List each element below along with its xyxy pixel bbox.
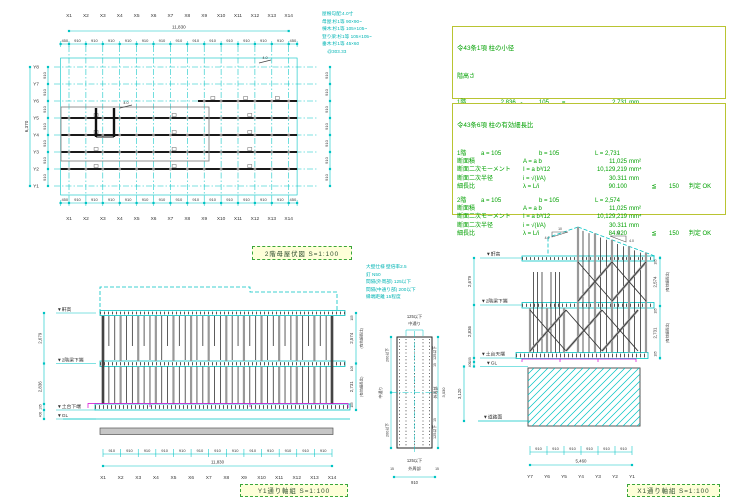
dim-text: 910 bbox=[108, 197, 115, 202]
purlin-joint bbox=[169, 168, 172, 171]
dim-text: 910 bbox=[226, 197, 233, 202]
calc-cell: A = a b bbox=[523, 158, 581, 166]
dim-text: 910 bbox=[277, 38, 284, 43]
dim-text: 125以下 bbox=[407, 458, 422, 464]
purlin-joint bbox=[101, 168, 104, 171]
dim-node bbox=[220, 43, 222, 45]
plan-x-label-top: X3 bbox=[100, 13, 106, 19]
purlin-joint bbox=[152, 134, 155, 137]
dim-node bbox=[43, 312, 45, 314]
purlin-joint bbox=[68, 151, 71, 154]
calc-cell: I = a b³/12 bbox=[523, 166, 581, 174]
dim-text: 910 bbox=[108, 38, 115, 43]
calc-cell: 11,025 bbox=[581, 158, 627, 166]
calc-cell: 断面二次半径 bbox=[457, 222, 523, 230]
slope-mark: 4.0 bbox=[262, 56, 267, 60]
calc-cell: 断面二次モーメント bbox=[457, 166, 523, 174]
dim-text: 910 bbox=[91, 197, 98, 202]
calc-row: 断面二次モーメントI = a b³/1210,129,219mm⁴ bbox=[457, 166, 725, 174]
calc-cell: λ = L/i bbox=[523, 230, 581, 238]
dim-node bbox=[102, 43, 104, 45]
purlin-joint bbox=[68, 134, 71, 137]
plan-x-label-top: X13 bbox=[268, 13, 277, 19]
dim-text: 2,574 bbox=[653, 276, 658, 288]
slope-arrow bbox=[259, 60, 271, 63]
calc-cell: L = 2,731 bbox=[595, 150, 725, 158]
dim-text: 15 bbox=[433, 363, 437, 367]
dim-text: 910 bbox=[569, 446, 576, 451]
calc-cell bbox=[679, 205, 721, 213]
dim-text: 910 bbox=[144, 448, 151, 453]
purlin-joint bbox=[254, 151, 257, 154]
calc-box-title: 令43条1項 柱の小径 bbox=[457, 45, 725, 53]
dim-node bbox=[473, 357, 475, 359]
plan-x-label-top: X5 bbox=[134, 13, 140, 19]
dim-text: 2,836 bbox=[38, 381, 43, 393]
elevation-total-dim: 11,830 bbox=[211, 460, 225, 465]
dim-node bbox=[329, 134, 331, 136]
hanger-symbol bbox=[172, 131, 176, 134]
calc-cell bbox=[661, 166, 679, 174]
dim-node bbox=[136, 43, 138, 45]
calc-cell bbox=[647, 158, 661, 166]
dim-text: 910 bbox=[260, 197, 267, 202]
dim-node bbox=[271, 43, 273, 45]
calc-cell bbox=[679, 166, 721, 174]
hatch-line bbox=[574, 368, 632, 426]
slope-mark: 4.0 bbox=[123, 101, 128, 105]
purlin-joint bbox=[169, 151, 172, 154]
level-label: ▼土台天端 bbox=[481, 351, 505, 358]
ground-strip bbox=[100, 428, 333, 435]
plan-x-label-bottom: X9 bbox=[201, 216, 207, 222]
panel-note-line: 間隔(外周部) 125以下 bbox=[366, 278, 416, 286]
axis-label: X11 bbox=[275, 475, 284, 481]
axis-label: Y1 bbox=[629, 474, 635, 480]
purlin-joint bbox=[152, 168, 155, 171]
dim-node bbox=[393, 476, 395, 478]
calc-cell bbox=[647, 175, 661, 183]
dim-text: 910 bbox=[159, 38, 166, 43]
dim-node bbox=[29, 66, 31, 68]
dim-text: 910 bbox=[42, 156, 47, 163]
calc-cell bbox=[647, 213, 661, 221]
dim-node bbox=[43, 418, 45, 420]
dim-text: 910 bbox=[324, 156, 329, 163]
plan-left-total-dim: 6,370 bbox=[24, 120, 29, 132]
purlin-joint bbox=[220, 117, 223, 120]
dim-text: 910 bbox=[125, 197, 132, 202]
plan-x-label-bottom: X3 bbox=[100, 216, 106, 222]
purlin-joint bbox=[152, 151, 155, 154]
purlin-joint bbox=[85, 134, 88, 137]
dim-node bbox=[463, 420, 465, 422]
axis-label: X10 bbox=[257, 475, 266, 481]
purlin-joint bbox=[186, 168, 189, 171]
calc-cell: 30.311 bbox=[581, 175, 627, 183]
calc-cell: ≦ bbox=[647, 183, 661, 191]
calc-cell: L = 2,574 bbox=[595, 197, 725, 205]
purlin-joint bbox=[287, 117, 290, 120]
purlin-joint bbox=[203, 117, 206, 120]
purlin-joint bbox=[118, 151, 121, 154]
plan-y-label: Y8 bbox=[33, 65, 39, 71]
calc-cell: a = 105 bbox=[481, 197, 539, 205]
purlin-joint bbox=[68, 168, 71, 171]
dim-text: 15 bbox=[433, 418, 437, 422]
purlin-joint bbox=[203, 151, 206, 154]
purlin-joint bbox=[270, 100, 273, 103]
dim-text: 910 bbox=[176, 197, 183, 202]
calc-cell bbox=[679, 175, 721, 183]
dim-text: 910 bbox=[267, 448, 274, 453]
dim-text: 105 bbox=[654, 351, 658, 357]
panel-note-line: 縁端距離 15程度 bbox=[366, 293, 416, 301]
dim-node bbox=[47, 100, 49, 102]
slope-arrow bbox=[120, 105, 132, 108]
dim-text: 910 bbox=[126, 448, 133, 453]
dim-text: 910 bbox=[324, 88, 329, 95]
calc-cell: 断面積 bbox=[457, 158, 523, 166]
plan-y-label: Y2 bbox=[33, 167, 39, 173]
dim-text: 450 bbox=[290, 38, 297, 43]
purlin-joint bbox=[254, 100, 257, 103]
hatch-line bbox=[560, 368, 618, 426]
dim-note: (有効細長比) bbox=[359, 377, 364, 397]
dim-text: 910 bbox=[243, 38, 250, 43]
dim-note: (有効細長比) bbox=[665, 323, 670, 343]
calc-cell: 2階 bbox=[457, 197, 481, 205]
purlin-joint bbox=[287, 100, 290, 103]
dim-text: 910 bbox=[324, 122, 329, 129]
plan-x-label-bottom: X13 bbox=[268, 216, 277, 222]
hanger-symbol bbox=[172, 114, 176, 117]
dim-text: 910 bbox=[249, 448, 256, 453]
axis-label: Y7 bbox=[527, 474, 533, 480]
dim-text: 2,731 bbox=[653, 327, 658, 339]
plan-x-label-bottom: X11 bbox=[234, 216, 243, 222]
dim-text: 910 bbox=[552, 446, 559, 451]
purlin-joint bbox=[186, 134, 189, 137]
hanger-symbol bbox=[248, 148, 252, 151]
axis-label: Y4 bbox=[578, 474, 584, 480]
dim-text: 910 bbox=[243, 197, 250, 202]
dim-text: 910 bbox=[586, 446, 593, 451]
dim-text: 125以下 bbox=[432, 346, 437, 360]
dim-note: (有効細長比) bbox=[359, 328, 364, 348]
purlin-joint bbox=[186, 151, 189, 154]
hanger-symbol bbox=[211, 97, 215, 100]
calc-rows: 1階a = 105b = 105L = 2,731断面積A = a b11,02… bbox=[457, 150, 725, 238]
purlin-joint bbox=[237, 134, 240, 137]
dim-text: 2,679 bbox=[38, 332, 43, 344]
dim-text: 910 bbox=[302, 448, 309, 453]
panel-note-line: 釘 N50 bbox=[366, 271, 416, 279]
axis-label: X5 bbox=[171, 475, 177, 481]
plan-y-label: Y7 bbox=[33, 82, 39, 88]
hatch-line bbox=[528, 368, 534, 374]
hatch-line bbox=[539, 368, 597, 426]
calc-cell bbox=[647, 205, 661, 213]
purlin-joint bbox=[169, 117, 172, 120]
purlin-joint bbox=[203, 134, 206, 137]
calc-cell: 10,129,219 bbox=[581, 166, 627, 174]
purlin-joint bbox=[220, 100, 223, 103]
dim-text: 15 bbox=[435, 467, 439, 471]
plan-x-label-top: X6 bbox=[151, 13, 157, 19]
dim-text: 450 bbox=[61, 38, 68, 43]
axis-label: Y3 bbox=[595, 474, 601, 480]
plan-x-label-bottom: X1 bbox=[66, 216, 72, 222]
level-label: ▼2階梁下端 bbox=[481, 298, 508, 305]
purlin-joint bbox=[118, 134, 121, 137]
dim-node bbox=[47, 151, 49, 153]
dim-node bbox=[119, 202, 121, 204]
dim-node bbox=[47, 66, 49, 68]
panel-label: 外周部 bbox=[432, 387, 438, 399]
dim-text: 910 bbox=[324, 139, 329, 146]
purlin-joint bbox=[135, 117, 138, 120]
hatch-line bbox=[528, 368, 555, 395]
calc-row: 断面二次半径i = √(I/A)30.311mm bbox=[457, 175, 725, 183]
purlin-joint bbox=[287, 134, 290, 137]
dim-node bbox=[220, 202, 222, 204]
dim-node bbox=[43, 403, 45, 405]
plan-x-label-top: X4 bbox=[117, 13, 123, 19]
calc-cell: 断面二次半径 bbox=[457, 175, 523, 183]
hatch-line bbox=[567, 368, 625, 426]
dim-text: 910 bbox=[214, 448, 221, 453]
dim-node bbox=[659, 257, 661, 259]
dim-node bbox=[85, 202, 87, 204]
panel-spec-notes: 大壁仕様 壁倍率2.5釘 N50間隔(外周部) 125以下間隔(中通り部) 20… bbox=[366, 263, 416, 301]
dim-node bbox=[437, 447, 439, 449]
calc-cell: 細長比 bbox=[457, 230, 523, 238]
calc-cell bbox=[661, 175, 679, 183]
dim-text: 910 bbox=[179, 448, 186, 453]
panel-label: 中通り bbox=[408, 320, 421, 327]
hatch-line bbox=[546, 368, 604, 426]
plan-x-label-top: X12 bbox=[251, 13, 260, 19]
dim-node bbox=[473, 361, 475, 363]
purlin-joint bbox=[220, 134, 223, 137]
plan-x-label-top: X7 bbox=[167, 13, 173, 19]
dim-node bbox=[68, 30, 70, 32]
calc-box-subtitle: 階高さ bbox=[457, 73, 725, 81]
axis-label: X14 bbox=[328, 475, 337, 481]
plan-x-label-bottom: X2 bbox=[83, 216, 89, 222]
dim-node bbox=[473, 257, 475, 259]
plan-x-label-bottom: X10 bbox=[217, 216, 226, 222]
plan-x-label-top: X1 bbox=[66, 13, 72, 19]
dim-node bbox=[329, 151, 331, 153]
purlin-joint bbox=[85, 168, 88, 171]
axis-label: X12 bbox=[292, 475, 301, 481]
panel-note-line: 間隔(中通り部) 200以下 bbox=[366, 286, 416, 294]
dim-text: 2,836 bbox=[467, 325, 472, 337]
calc-cell: 90.100 bbox=[581, 183, 627, 191]
dim-node bbox=[47, 168, 49, 170]
dim-node bbox=[473, 365, 475, 367]
calc-cell: mm bbox=[627, 175, 647, 183]
plan-x-label-bottom: X6 bbox=[151, 216, 157, 222]
dim-node bbox=[329, 83, 331, 85]
calc-cell: i = √(I/A) bbox=[523, 222, 581, 230]
plan-x-label-top: X14 bbox=[284, 13, 293, 19]
calc-row: 断面積A = a b11,025mm² bbox=[457, 158, 725, 166]
dim-text: 910 bbox=[535, 446, 542, 451]
purlin-joint bbox=[135, 134, 138, 137]
level-label: ▼GL bbox=[486, 361, 497, 367]
dim-node bbox=[152, 43, 154, 45]
plan-x-label-bottom: X14 bbox=[284, 216, 293, 222]
dim-text: 15 bbox=[390, 467, 394, 471]
dim-text: 105 bbox=[350, 366, 354, 372]
dim-node bbox=[152, 202, 154, 204]
plan-x-label-bottom: X8 bbox=[184, 216, 190, 222]
dim-node bbox=[659, 305, 661, 307]
dim-node bbox=[47, 185, 49, 187]
dim-node bbox=[43, 362, 45, 364]
calc-cell: 150 bbox=[661, 230, 679, 238]
hatch-line bbox=[581, 368, 639, 426]
dim-node bbox=[203, 43, 205, 45]
anchor-bolt-line bbox=[522, 359, 636, 362]
dim-text: 400 bbox=[468, 362, 472, 368]
plan-note-line: 屋根勾配:4.0寸 bbox=[322, 10, 372, 18]
axis-label: X3 bbox=[135, 475, 141, 481]
purlin-joint bbox=[287, 168, 290, 171]
calc-cell bbox=[661, 158, 679, 166]
calc-row: 1階a = 105b = 105L = 2,731 bbox=[457, 150, 725, 158]
purlin-joint bbox=[270, 117, 273, 120]
dim-text: 910 bbox=[42, 122, 47, 129]
dim-node bbox=[237, 43, 239, 45]
dim-text: 910 bbox=[42, 139, 47, 146]
dim-node bbox=[43, 409, 45, 411]
calc-cell: 断面二次モーメント bbox=[457, 213, 523, 221]
purlin-joint bbox=[101, 151, 104, 154]
calc-cell: 30.311 bbox=[581, 222, 627, 230]
calc-cell bbox=[679, 222, 721, 230]
dim-node bbox=[329, 117, 331, 119]
calc-cell: mm bbox=[627, 222, 647, 230]
dim-node bbox=[355, 409, 357, 411]
purlin-joint bbox=[152, 117, 155, 120]
calc-cell: mm⁴ bbox=[627, 166, 647, 174]
hanger-symbol bbox=[94, 165, 98, 168]
calc-row: 細長比λ = L/i84.920≦150判定 OK bbox=[457, 230, 725, 238]
hanger-symbol bbox=[172, 165, 176, 168]
dim-text: 910 bbox=[209, 38, 216, 43]
calc-cell: 84.920 bbox=[581, 230, 627, 238]
x1-elevation-title: X1通り軸組 S=1:100 bbox=[627, 484, 720, 497]
dim-text: 910 bbox=[74, 38, 81, 43]
calc-cell bbox=[661, 222, 679, 230]
calc-cell: b = 105 bbox=[539, 150, 595, 158]
purlin-joint bbox=[85, 151, 88, 154]
purlin-joint bbox=[135, 151, 138, 154]
hatch-line bbox=[595, 381, 640, 426]
dim-node bbox=[329, 185, 331, 187]
dim-node bbox=[331, 465, 333, 467]
plan-y-label: Y1 bbox=[33, 184, 39, 190]
dim-node bbox=[437, 336, 439, 338]
calc-cell: 細長比 bbox=[457, 183, 523, 191]
dim-node bbox=[631, 464, 633, 466]
calc-cell bbox=[647, 222, 661, 230]
dim-node bbox=[434, 476, 436, 478]
dim-node bbox=[47, 117, 49, 119]
purlin-joint bbox=[135, 168, 138, 171]
plan-notes: 屋根勾配:4.0寸母屋:杉1等 90×90~棟木:杉1等 105×105~登り梁… bbox=[322, 10, 372, 56]
plan-note-line: @303.33 bbox=[322, 48, 372, 56]
dim-text: 910 bbox=[324, 173, 329, 180]
level-label: ▼2階梁下端 bbox=[57, 357, 84, 364]
dim-text: 910 bbox=[159, 197, 166, 202]
plan-x-label-bottom: X4 bbox=[117, 216, 123, 222]
plan-y-label: Y6 bbox=[33, 99, 39, 105]
hatch-line bbox=[588, 374, 640, 426]
dim-text: 3,120 bbox=[457, 388, 462, 399]
dim-node bbox=[288, 202, 290, 204]
hanger-symbol bbox=[248, 131, 252, 134]
calc-cell bbox=[679, 213, 721, 221]
axis-label: X2 bbox=[118, 475, 124, 481]
axis-label: Y6 bbox=[544, 474, 550, 480]
dim-node bbox=[102, 465, 104, 467]
calc-cell: a = 105 bbox=[481, 150, 539, 158]
calc-cell: mm² bbox=[627, 158, 647, 166]
dim-text: 910 bbox=[142, 197, 149, 202]
dim-text: 105 bbox=[654, 308, 658, 314]
plan-x-label-bottom: X5 bbox=[134, 216, 140, 222]
dim-text: 910 bbox=[320, 448, 327, 453]
purlin-joint bbox=[68, 117, 71, 120]
dim-node bbox=[288, 43, 290, 45]
calc-cell bbox=[661, 205, 679, 213]
dim-node bbox=[288, 30, 290, 32]
plan-note-line: 棟木:杉1等 105×105~ bbox=[322, 25, 372, 33]
dim-node bbox=[390, 391, 392, 393]
hatch-line bbox=[532, 368, 590, 426]
dim-text: 910 bbox=[91, 38, 98, 43]
dim-node bbox=[463, 365, 465, 367]
dim-text: 910 bbox=[74, 197, 81, 202]
elevation-total-dim: 5,460 bbox=[576, 459, 588, 464]
hatch-line bbox=[616, 402, 640, 426]
dim-node bbox=[329, 168, 331, 170]
dim-node bbox=[329, 100, 331, 102]
calc-cell: 10,129,219 bbox=[581, 213, 627, 221]
calc-cell: ≦ bbox=[647, 230, 661, 238]
dim-node bbox=[68, 202, 70, 204]
dim-text: 910 bbox=[260, 38, 267, 43]
calc-cell: 判定 OK bbox=[679, 230, 721, 238]
panel-label: 外周部 bbox=[408, 465, 421, 472]
dim-node bbox=[186, 43, 188, 45]
calc-box-slenderness: 令43条6項 柱の有効細長比 1階a = 105b = 105L = 2,731… bbox=[452, 103, 726, 215]
dim-node bbox=[169, 43, 171, 45]
dim-text: 910 bbox=[324, 71, 329, 78]
dim-node bbox=[390, 447, 392, 449]
hanger-symbol bbox=[172, 148, 176, 151]
dim-node bbox=[355, 312, 357, 314]
dim-text: 400 bbox=[39, 412, 43, 418]
purlin-joint bbox=[186, 117, 189, 120]
plan-x-label-top: X2 bbox=[83, 13, 89, 19]
cad-drawing-sheet: X1X1X2X2X3X3X4X4X5X5X6X6X7X7X8X8X9X9X10X… bbox=[0, 0, 749, 504]
